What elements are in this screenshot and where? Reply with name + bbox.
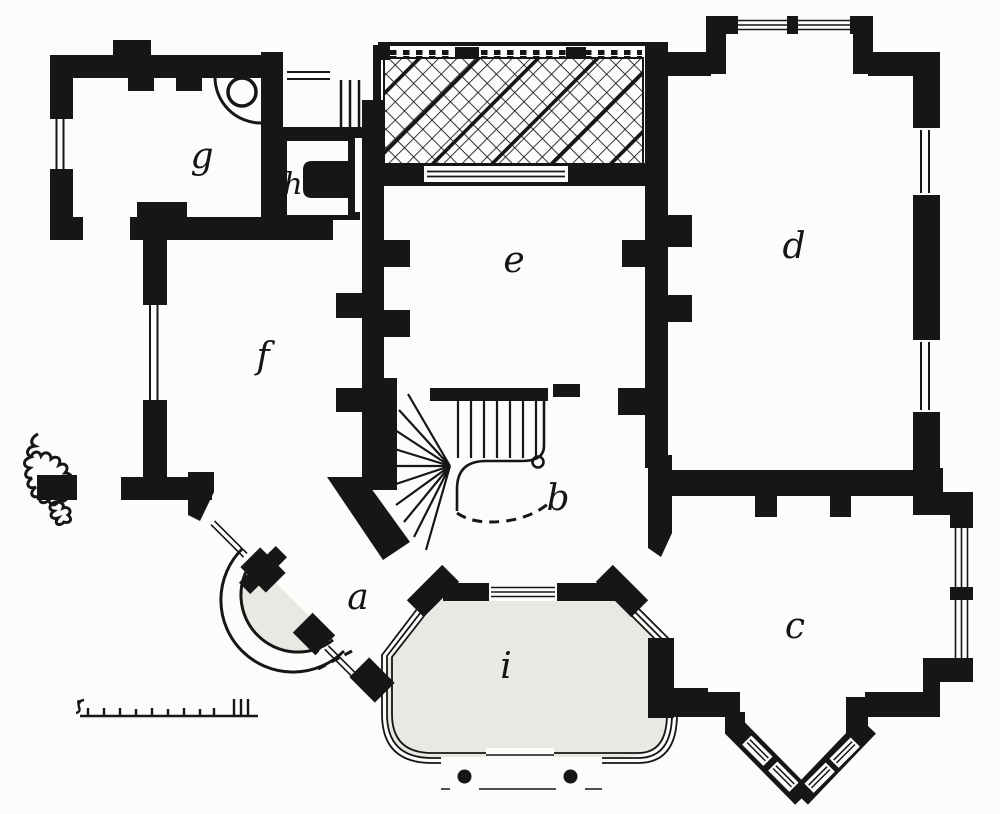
- floor-plan-figure: a b c d e f g h i: [0, 0, 1000, 814]
- room-label-e: e: [503, 240, 524, 281]
- room-label-b: b: [546, 478, 569, 519]
- room-label-h: h: [283, 167, 302, 202]
- terrace-parapet-line: [378, 42, 662, 46]
- wall-stair-north: [430, 388, 548, 401]
- wall-corridor: [362, 100, 384, 480]
- terrace-steps: [424, 166, 568, 182]
- room-label-i: i: [500, 646, 512, 687]
- room-label-a: a: [347, 577, 368, 618]
- porch-landing: [281, 42, 339, 62]
- floor-plan-svg: a b c d e f g h i: [0, 0, 1000, 814]
- h-closet-core: [303, 161, 348, 198]
- room-label-d: d: [782, 226, 805, 267]
- chimney: [113, 40, 151, 57]
- room-label-c: c: [785, 606, 805, 647]
- terrace-dentil-row: [386, 50, 642, 57]
- room-label-g: g: [190, 136, 213, 177]
